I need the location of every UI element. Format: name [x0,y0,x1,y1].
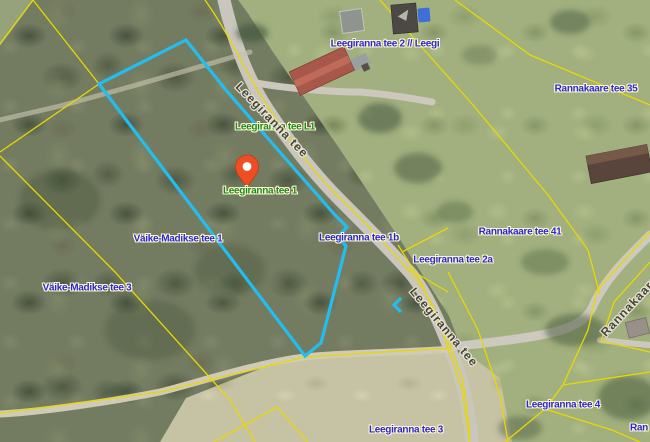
small-gray-building [625,318,649,339]
boundary-line [402,228,448,252]
map-vector-layer [0,0,650,442]
boundary-line [214,407,308,442]
address-label: Rannakaare tee 41 [479,227,562,238]
boundary-line [0,0,33,44]
dark-outbuilding [391,3,418,34]
yard-track [252,82,432,102]
right-building [586,144,650,183]
blue-car [417,8,430,23]
address-label: Väike-Madikse tee 3 [43,283,132,294]
parcel-boundary-fragment [394,298,401,312]
boundary-line [0,348,452,413]
address-label: Leegiranna tee 1b [319,233,399,244]
address-label-clipped: Ran [630,423,648,434]
address-label: Leegiranna tee 3 [369,425,443,436]
location-marker-icon[interactable] [236,155,259,187]
map-canvas[interactable]: Leegiranna tee 2 // Leegi Väike-Madikse … [0,0,650,442]
address-label: Rannakaare tee 35 [555,84,638,95]
address-label-green: Leegiranna tee 1 [223,186,297,197]
address-label: Väike-Madikse tee 1 [134,234,223,245]
address-label: Leegiranna tee 2 // Leegi [331,39,440,50]
boundary-line [33,0,99,84]
gray-shed [340,9,365,34]
address-label: Leegiranna tee 2a [413,255,492,266]
address-label: Leegiranna tee 4 [526,400,600,411]
parcel-track [0,52,250,120]
